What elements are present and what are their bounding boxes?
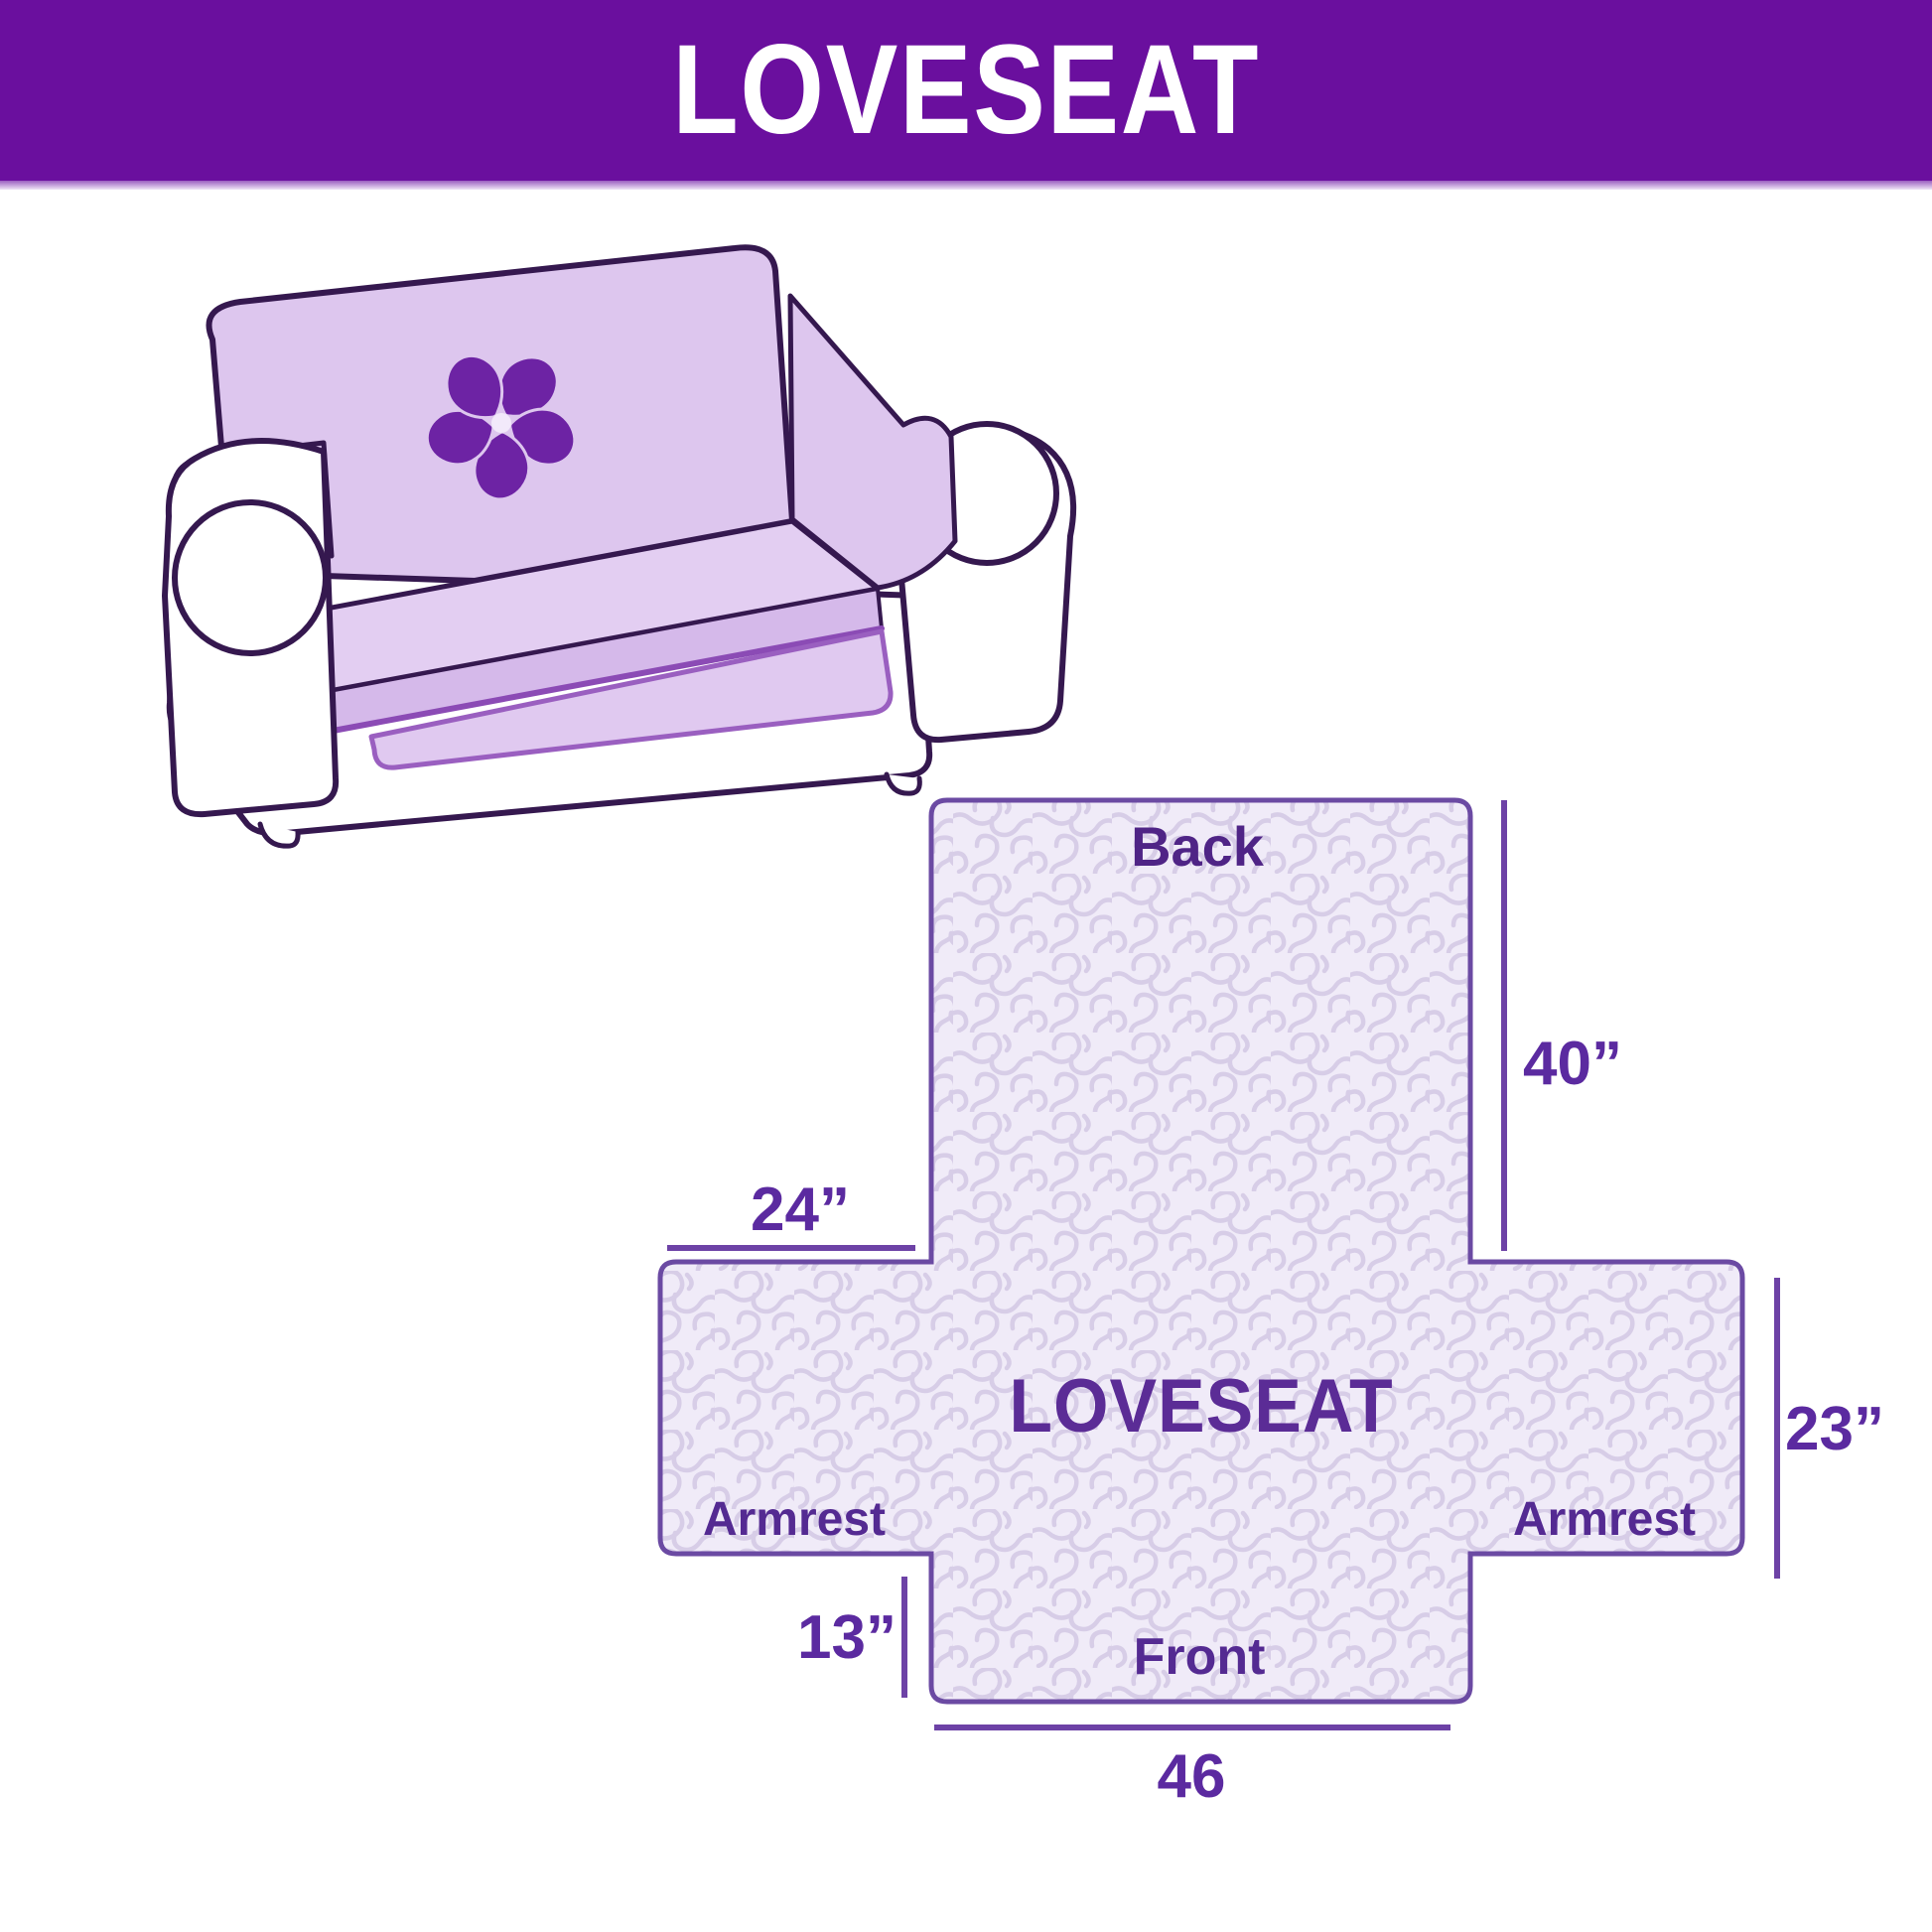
section-label-armrest-left: Armrest (703, 1496, 886, 1544)
diagram-title: LOVESEAT (1009, 1369, 1393, 1445)
dimension-back-height: 40” (1523, 1034, 1622, 1095)
loveseat-infographic: LOVESEAT (0, 0, 1932, 1932)
section-label-back: Back (1131, 819, 1264, 875)
section-label-armrest-right: Armrest (1513, 1496, 1696, 1544)
dimension-front-skirt-height: 13” (797, 1607, 897, 1669)
dimension-back-width: 24” (751, 1179, 850, 1241)
dimension-armrest-height: 23” (1785, 1399, 1884, 1460)
dimension-front-width: 46 (1158, 1746, 1226, 1808)
cover-dimension-diagram (0, 0, 1932, 1932)
section-label-front: Front (1134, 1631, 1266, 1683)
